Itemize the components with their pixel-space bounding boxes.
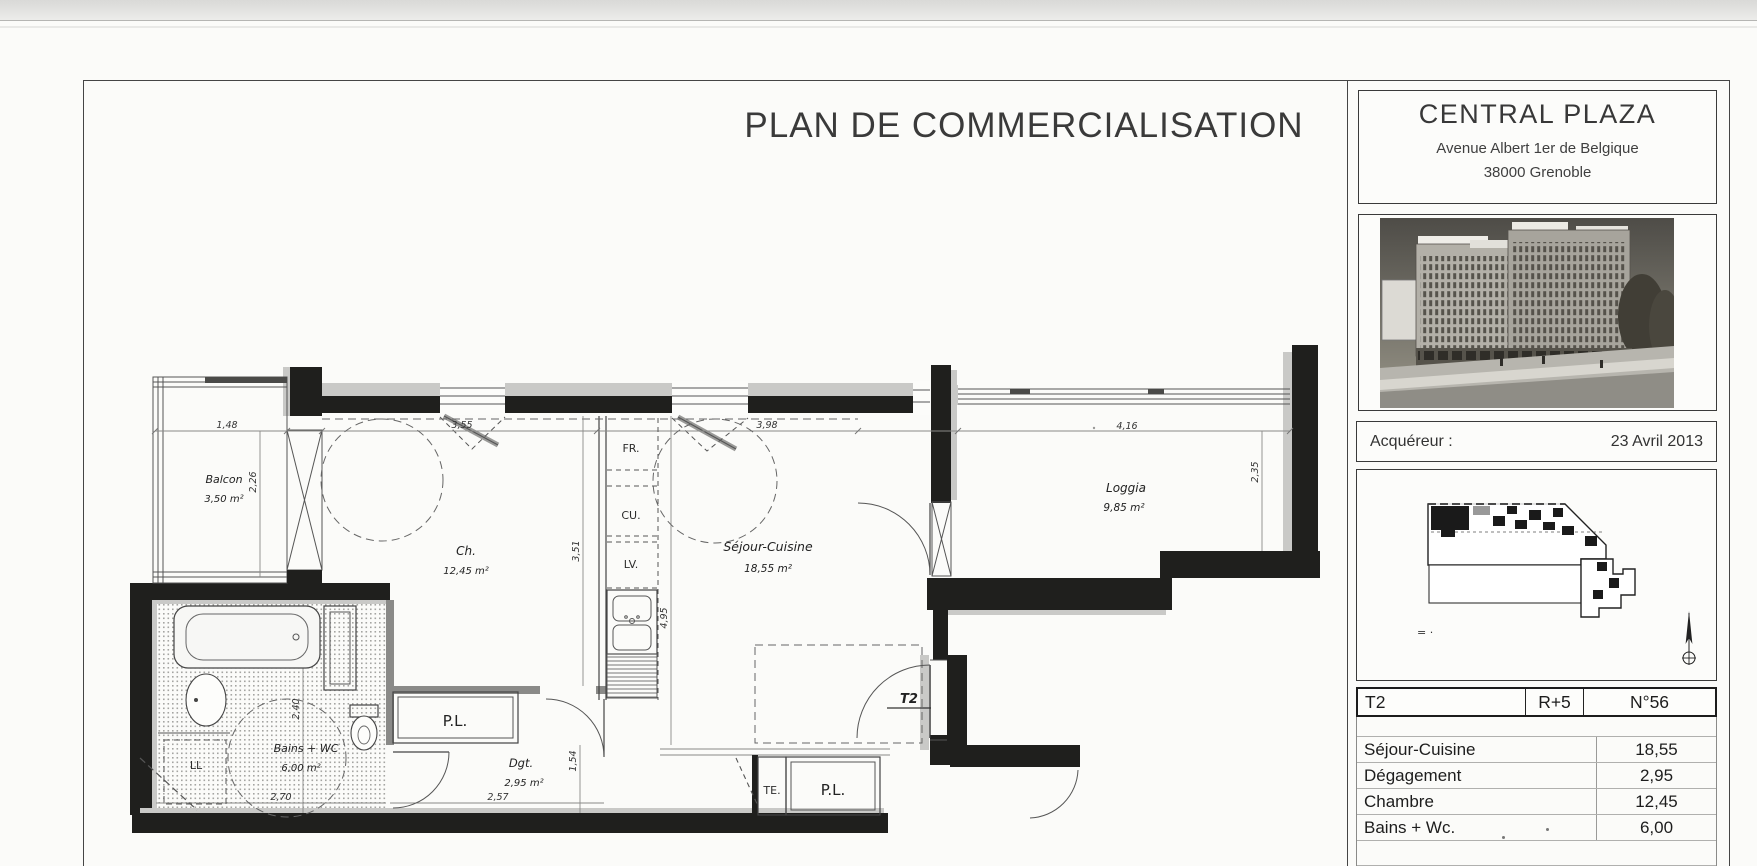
building-photo-box	[1358, 214, 1717, 411]
table-row: Bains + Wc. 6,00	[1357, 815, 1716, 841]
acquirer-box: Acquéreur : 23 Avril 2013	[1356, 421, 1717, 462]
scanner-edge-line	[0, 26, 1757, 28]
dishwasher-label: LV.	[624, 558, 639, 571]
entry-vestibule-zone	[755, 645, 922, 743]
dim-balcon-width: 1,48	[216, 420, 237, 431]
dim-loggia-width: 4,16	[1116, 421, 1137, 432]
scan-speck	[1502, 836, 1505, 839]
table-row: Chambre 12,45	[1357, 789, 1716, 815]
cooking-label: CU.	[621, 509, 640, 522]
unit-summary-table: T2 R+5 N°56 Séjour-Cuisine 18,55 Dégagem…	[1356, 687, 1717, 866]
key-plan-highlighted-unit	[1431, 506, 1469, 530]
entry-door-t2: T2	[857, 660, 947, 740]
room-area: 12,45	[1596, 789, 1716, 814]
dim-bains-depth: 2,40	[291, 698, 302, 719]
chambre-name: Ch.	[456, 544, 476, 558]
washer-label: LL	[190, 759, 203, 772]
loggia-railing	[952, 385, 1290, 405]
key-plan-mark: = ·	[1417, 626, 1433, 639]
table-row: Séjour-Cuisine 18,55	[1357, 737, 1716, 763]
unit-number: N°56	[1583, 689, 1715, 715]
scanned-floorplan-page: PLAN DE COMMERCIALISATION CENTRAL PLAZA …	[0, 0, 1757, 866]
unit-table-header: T2 R+5 N°56	[1356, 687, 1717, 717]
project-box: CENTRAL PLAZA Avenue Albert 1er de Belgi…	[1358, 90, 1717, 204]
loggia-area: 9,85 m²	[1103, 502, 1145, 514]
window-sejour	[672, 381, 748, 451]
key-plan-podium	[1429, 565, 1581, 603]
dim-balcon-depth: 2,26	[248, 471, 259, 492]
bathtub	[174, 606, 320, 668]
kitchen-units: FR. CU. LV.	[607, 418, 658, 700]
building-rendering-image	[1380, 218, 1674, 408]
turning-circle	[321, 419, 443, 541]
unit-table-body: Séjour-Cuisine 18,55 Dégagement 2,95 Cha…	[1356, 717, 1717, 866]
loggia-name: Loggia	[1106, 481, 1146, 495]
project-address-line2: 38000 Grenoble	[1359, 164, 1716, 181]
bains-area: 6,00 m²	[281, 763, 320, 774]
unit-type: T2	[1358, 689, 1525, 715]
sejour-area: 18,55 m²	[744, 563, 793, 575]
kitchen-sink	[607, 590, 657, 654]
bains-name: Bains + WC	[274, 742, 339, 755]
dim-chambre-depth: 3,51	[571, 540, 582, 561]
chambre-area: 12,45 m²	[443, 566, 489, 577]
room-area: 6,00	[1596, 815, 1716, 840]
key-plan-drawing: = ·	[1357, 470, 1714, 678]
table-row: Dégagement 2,95	[1357, 763, 1716, 789]
dim-dgt-width: 2,57	[487, 792, 508, 803]
table-row-spacer	[1357, 717, 1716, 737]
unit-entry-label: T2	[900, 692, 918, 707]
room-degagement: Dgt. 2,95 m²	[504, 756, 543, 789]
project-name: CENTRAL PLAZA	[1359, 99, 1716, 130]
window-chambre	[440, 381, 505, 449]
table-row-spacer	[1357, 841, 1716, 866]
room-label: Dégagement	[1357, 763, 1596, 788]
corridor-door	[1030, 770, 1078, 818]
kitchen-grill-unit	[607, 654, 657, 698]
acquirer-label: Acquéreur :	[1370, 433, 1453, 451]
room-label: Bains + Wc.	[1357, 815, 1596, 840]
unit-floor: R+5	[1525, 689, 1583, 715]
dim-chambre-width: 3,55	[451, 420, 472, 431]
balcon-name: Balcon	[205, 473, 242, 486]
bathroom-door	[393, 752, 449, 808]
room-label: Chambre	[1357, 789, 1596, 814]
chambre-door	[546, 699, 604, 757]
dim-loggia-depth: 2,35	[1250, 461, 1261, 482]
dim-dgt-depth: 1,54	[568, 750, 579, 771]
scan-speck	[1546, 828, 1549, 831]
dgt-name: Dgt.	[509, 756, 533, 770]
key-plan-wing	[1581, 559, 1635, 617]
washbasin	[186, 674, 226, 726]
dgt-area: 2,95 m²	[504, 778, 543, 789]
room-area: 18,55	[1596, 737, 1716, 762]
title-block-divider	[1347, 80, 1348, 866]
page-title: PLAN DE COMMERCIALISATION	[700, 106, 1348, 146]
balcon-area: 3,50 m²	[204, 494, 243, 505]
room-sejour: Séjour-Cuisine 18,55 m² T2	[653, 419, 951, 743]
dim-sejour-width: 3,98	[756, 420, 777, 431]
room-balcon: Balcon 3,50 m²	[204, 473, 243, 505]
floor-plan-svg: 1,48 3,55 3,98 4,16 2,26 2,35 3,51 4,95 …	[100, 318, 1345, 858]
sejour-name: Séjour-Cuisine	[723, 539, 813, 554]
loggia-door	[858, 502, 951, 576]
room-label: Séjour-Cuisine	[1357, 737, 1596, 762]
dim-sejour-depth: 4,95	[659, 607, 670, 628]
acquirer-date: 23 Avril 2013	[1611, 433, 1703, 451]
dim-bains-width: 2,70	[270, 792, 291, 803]
fridge-label: FR.	[622, 442, 639, 455]
balcony-glazed-door	[287, 430, 322, 583]
entry-closets: TE. P.L.	[736, 757, 880, 815]
closet-chambre: P.L.	[393, 692, 518, 743]
key-plan-box: = ·	[1356, 469, 1717, 681]
north-compass-icon	[1682, 611, 1696, 665]
te-label: TE.	[762, 784, 780, 797]
closet2-label: P.L.	[821, 781, 846, 799]
room-area: 2,95	[1596, 763, 1716, 788]
closet1-label: P.L.	[443, 712, 468, 730]
project-address-line1: Avenue Albert 1er de Belgique	[1359, 140, 1716, 157]
room-loggia: Loggia 9,85 m²	[1103, 481, 1146, 514]
scanner-edge-band	[0, 0, 1757, 21]
